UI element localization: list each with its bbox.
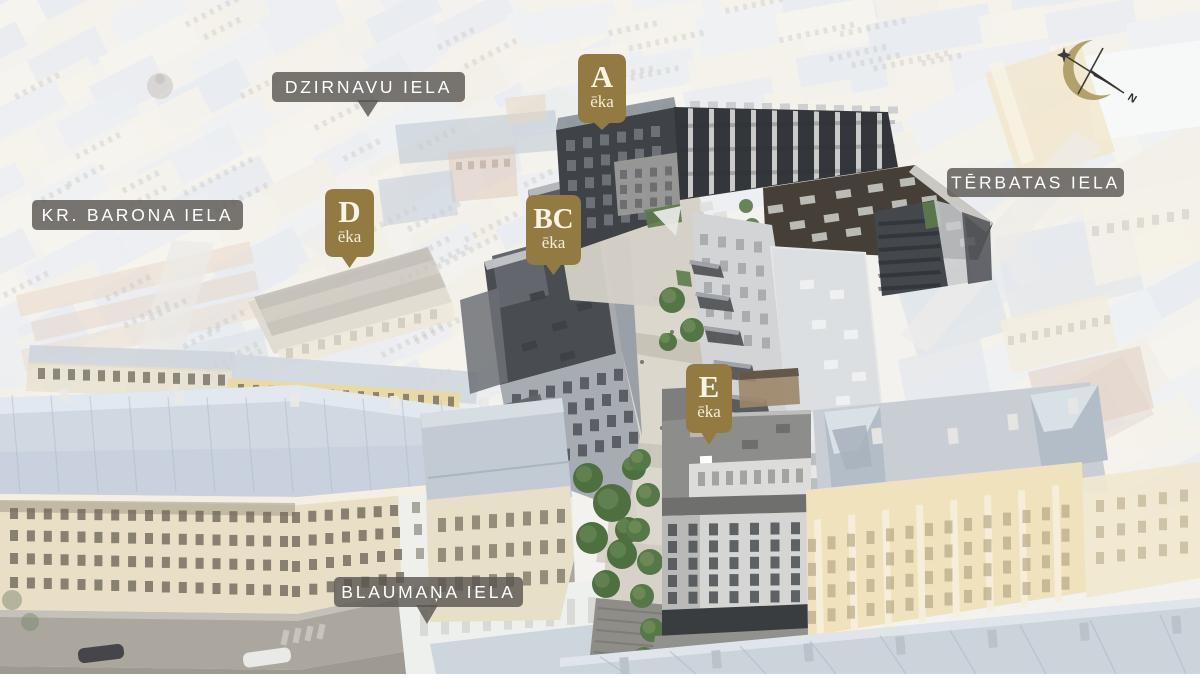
- svg-text:ēka: ēka: [697, 402, 721, 421]
- svg-text:D: D: [338, 194, 360, 229]
- svg-text:E: E: [699, 369, 720, 404]
- svg-text:DZIRNAVU IELA: DZIRNAVU IELA: [285, 77, 452, 97]
- svg-text:A: A: [591, 59, 614, 94]
- svg-text:BLAUMAŅA IELA: BLAUMAŅA IELA: [341, 582, 516, 602]
- svg-text:ēka: ēka: [542, 233, 566, 252]
- svg-text:TĒRBATAS IELA: TĒRBATAS IELA: [951, 173, 1120, 193]
- svg-text:KR. BARONA IELA: KR. BARONA IELA: [42, 205, 234, 225]
- svg-text:ēka: ēka: [338, 227, 362, 246]
- svg-text:ēka: ēka: [590, 92, 614, 111]
- svg-text:BC: BC: [533, 203, 573, 235]
